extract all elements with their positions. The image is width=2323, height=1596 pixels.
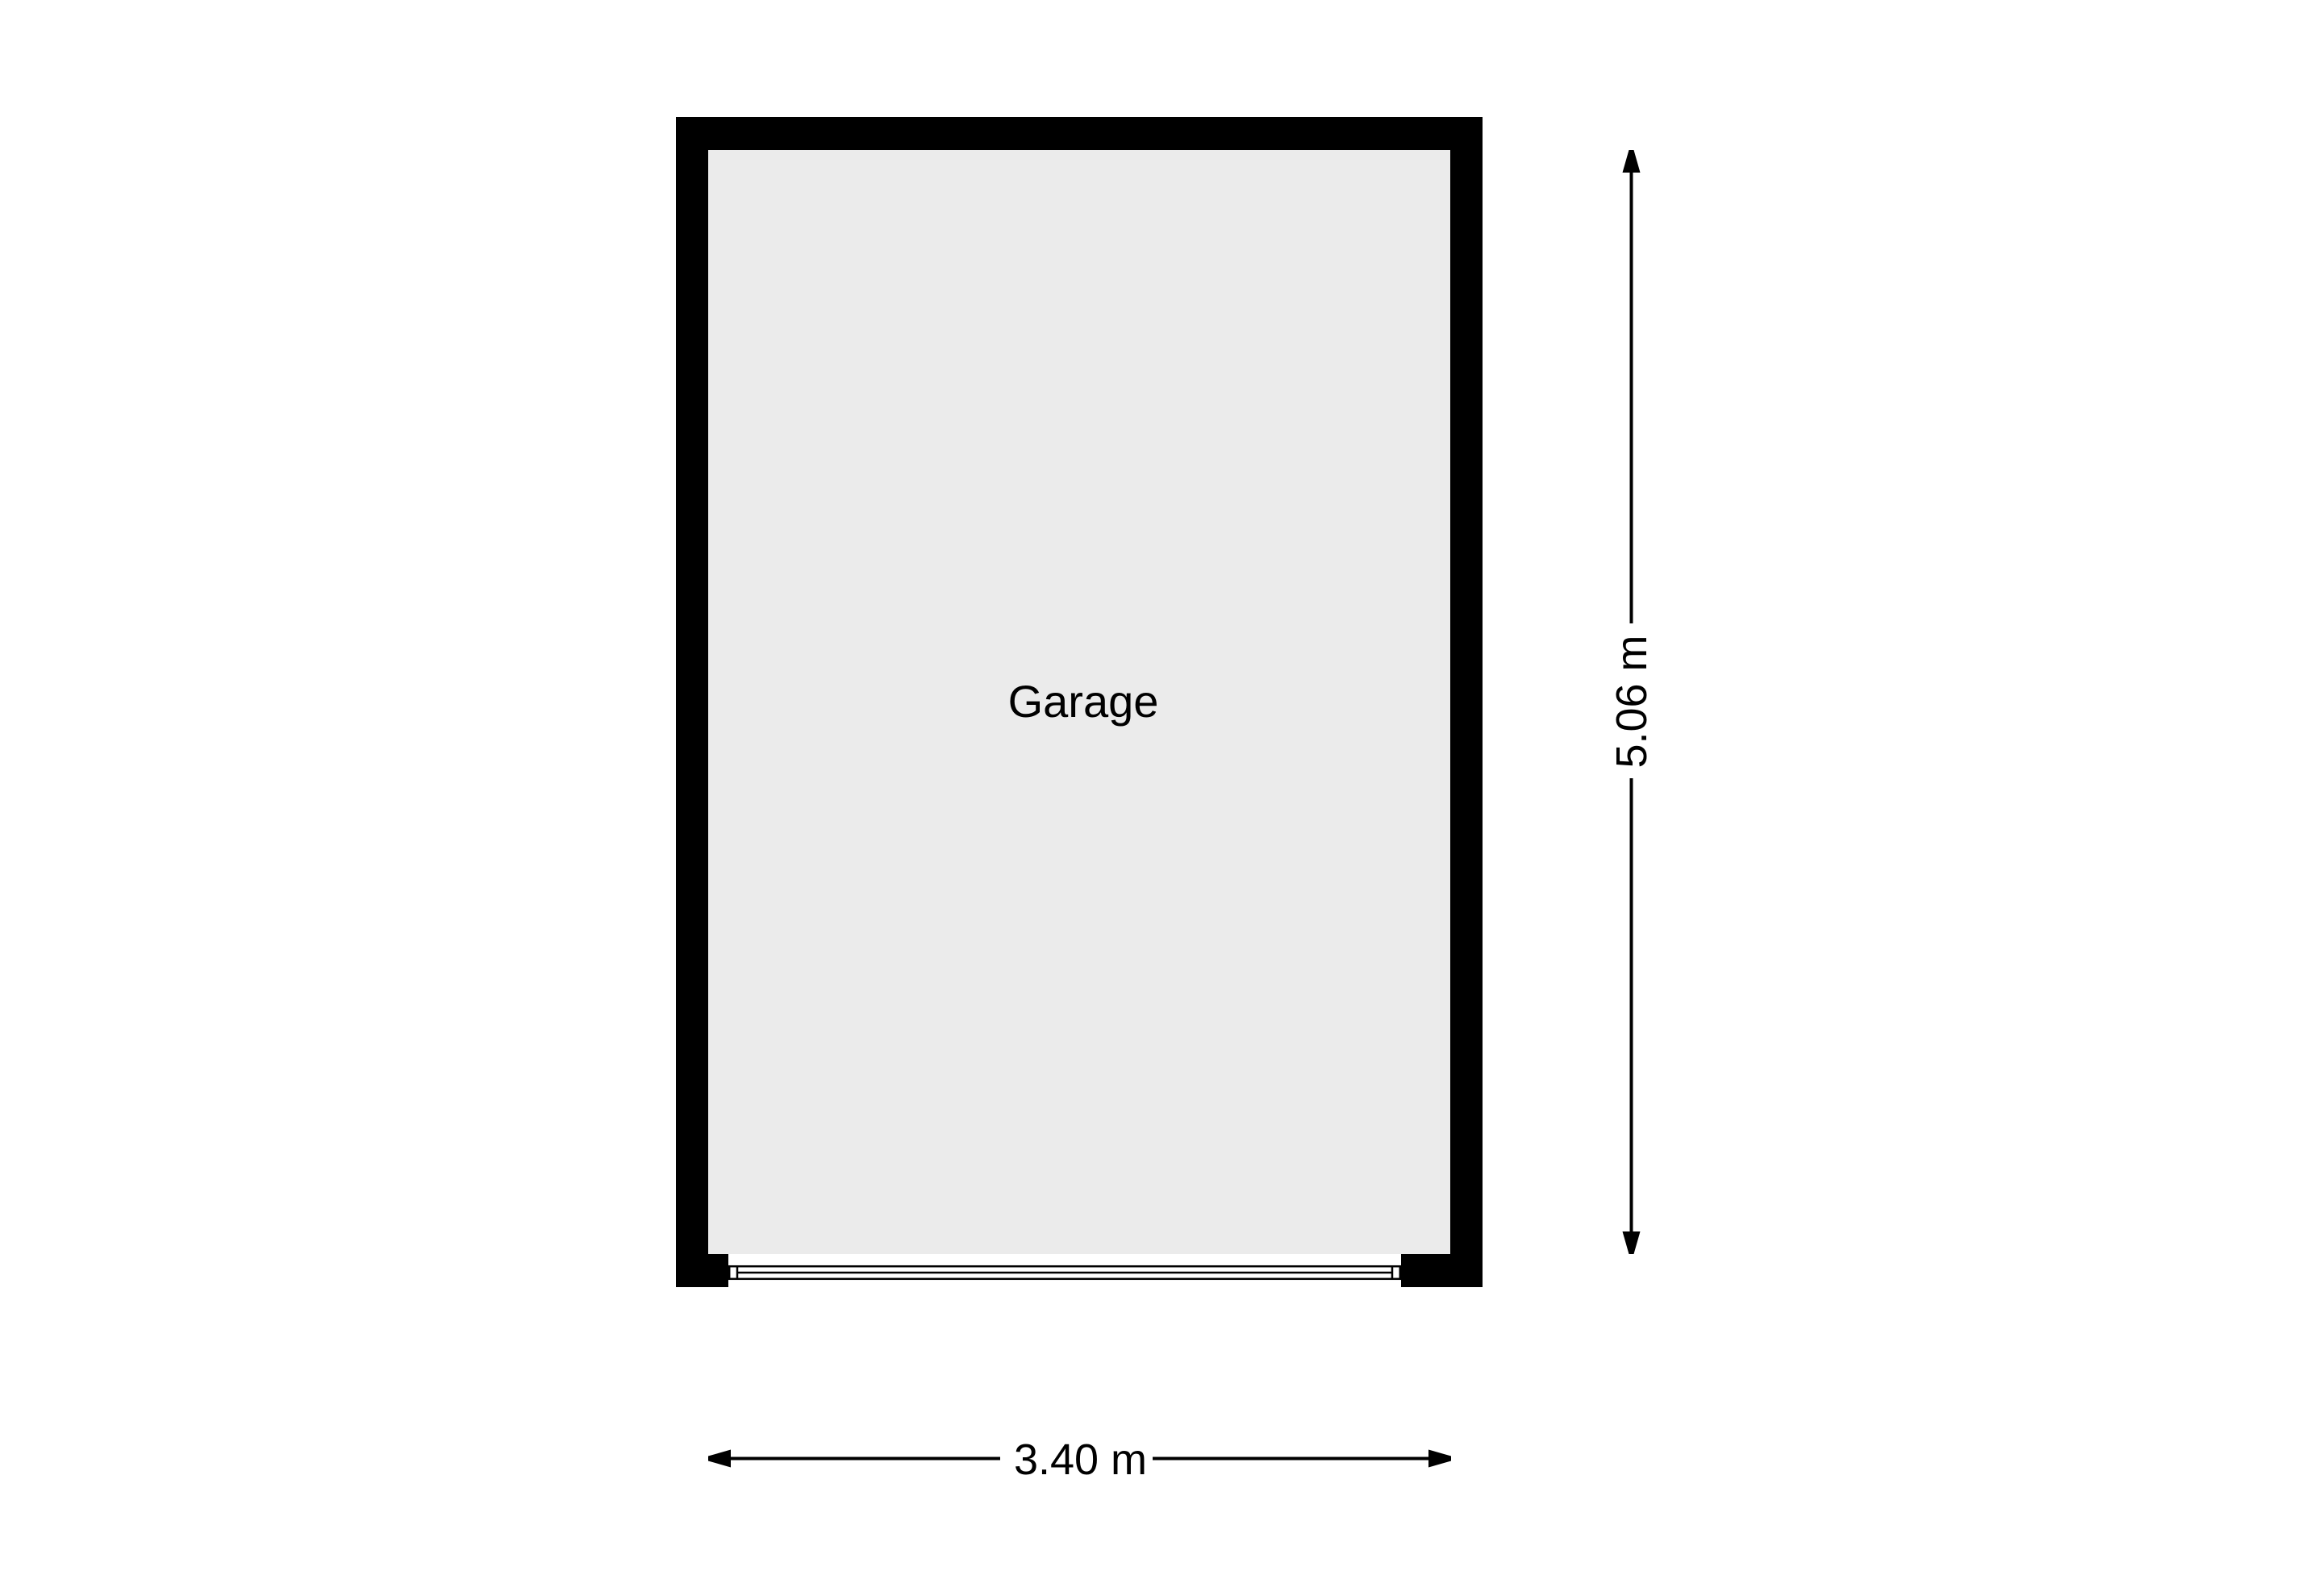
svg-text:5.06 m: 5.06 m <box>1608 635 1656 768</box>
svg-text:Garage: Garage <box>1008 676 1159 727</box>
svg-text:3.40 m: 3.40 m <box>1014 1436 1147 1484</box>
